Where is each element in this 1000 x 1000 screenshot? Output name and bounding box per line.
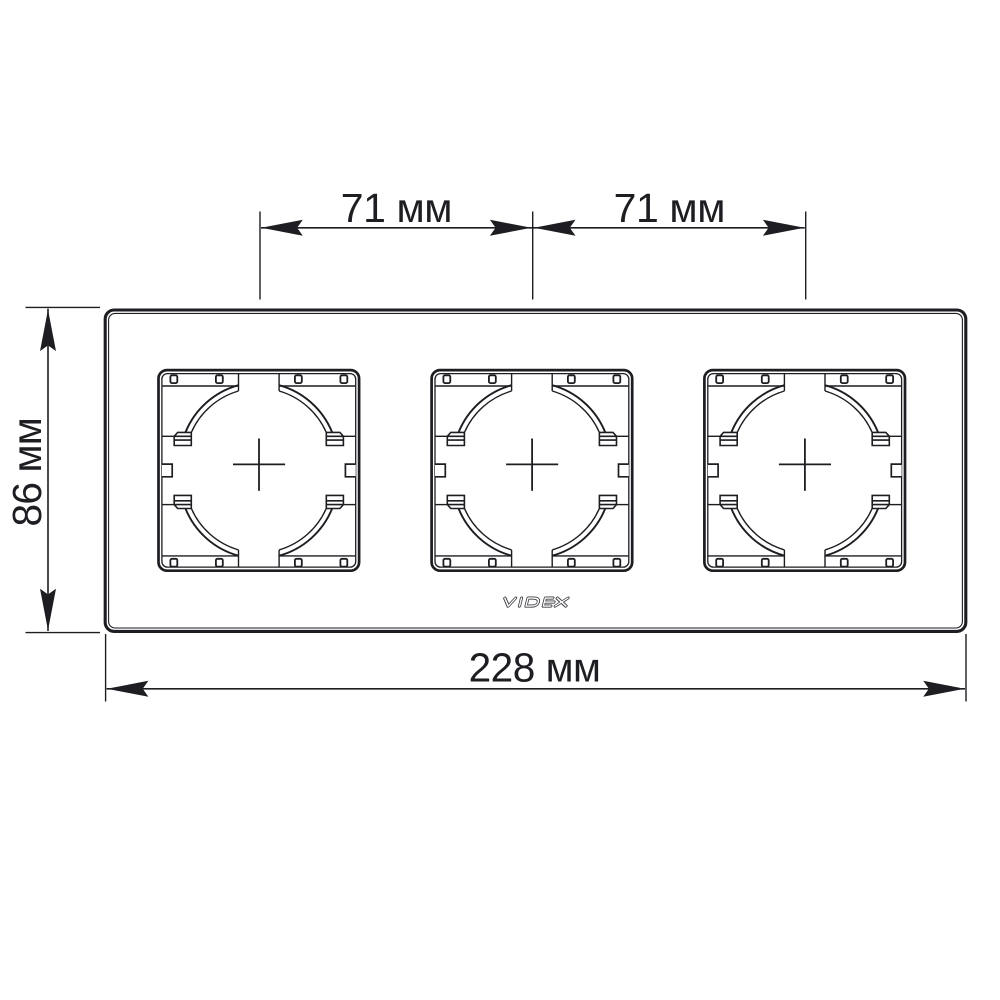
svg-text:86 мм: 86 мм [4, 418, 50, 526]
svg-text:71 мм: 71 мм [614, 185, 725, 231]
svg-text:71 мм: 71 мм [341, 185, 452, 231]
svg-text:228 мм: 228 мм [469, 645, 601, 691]
